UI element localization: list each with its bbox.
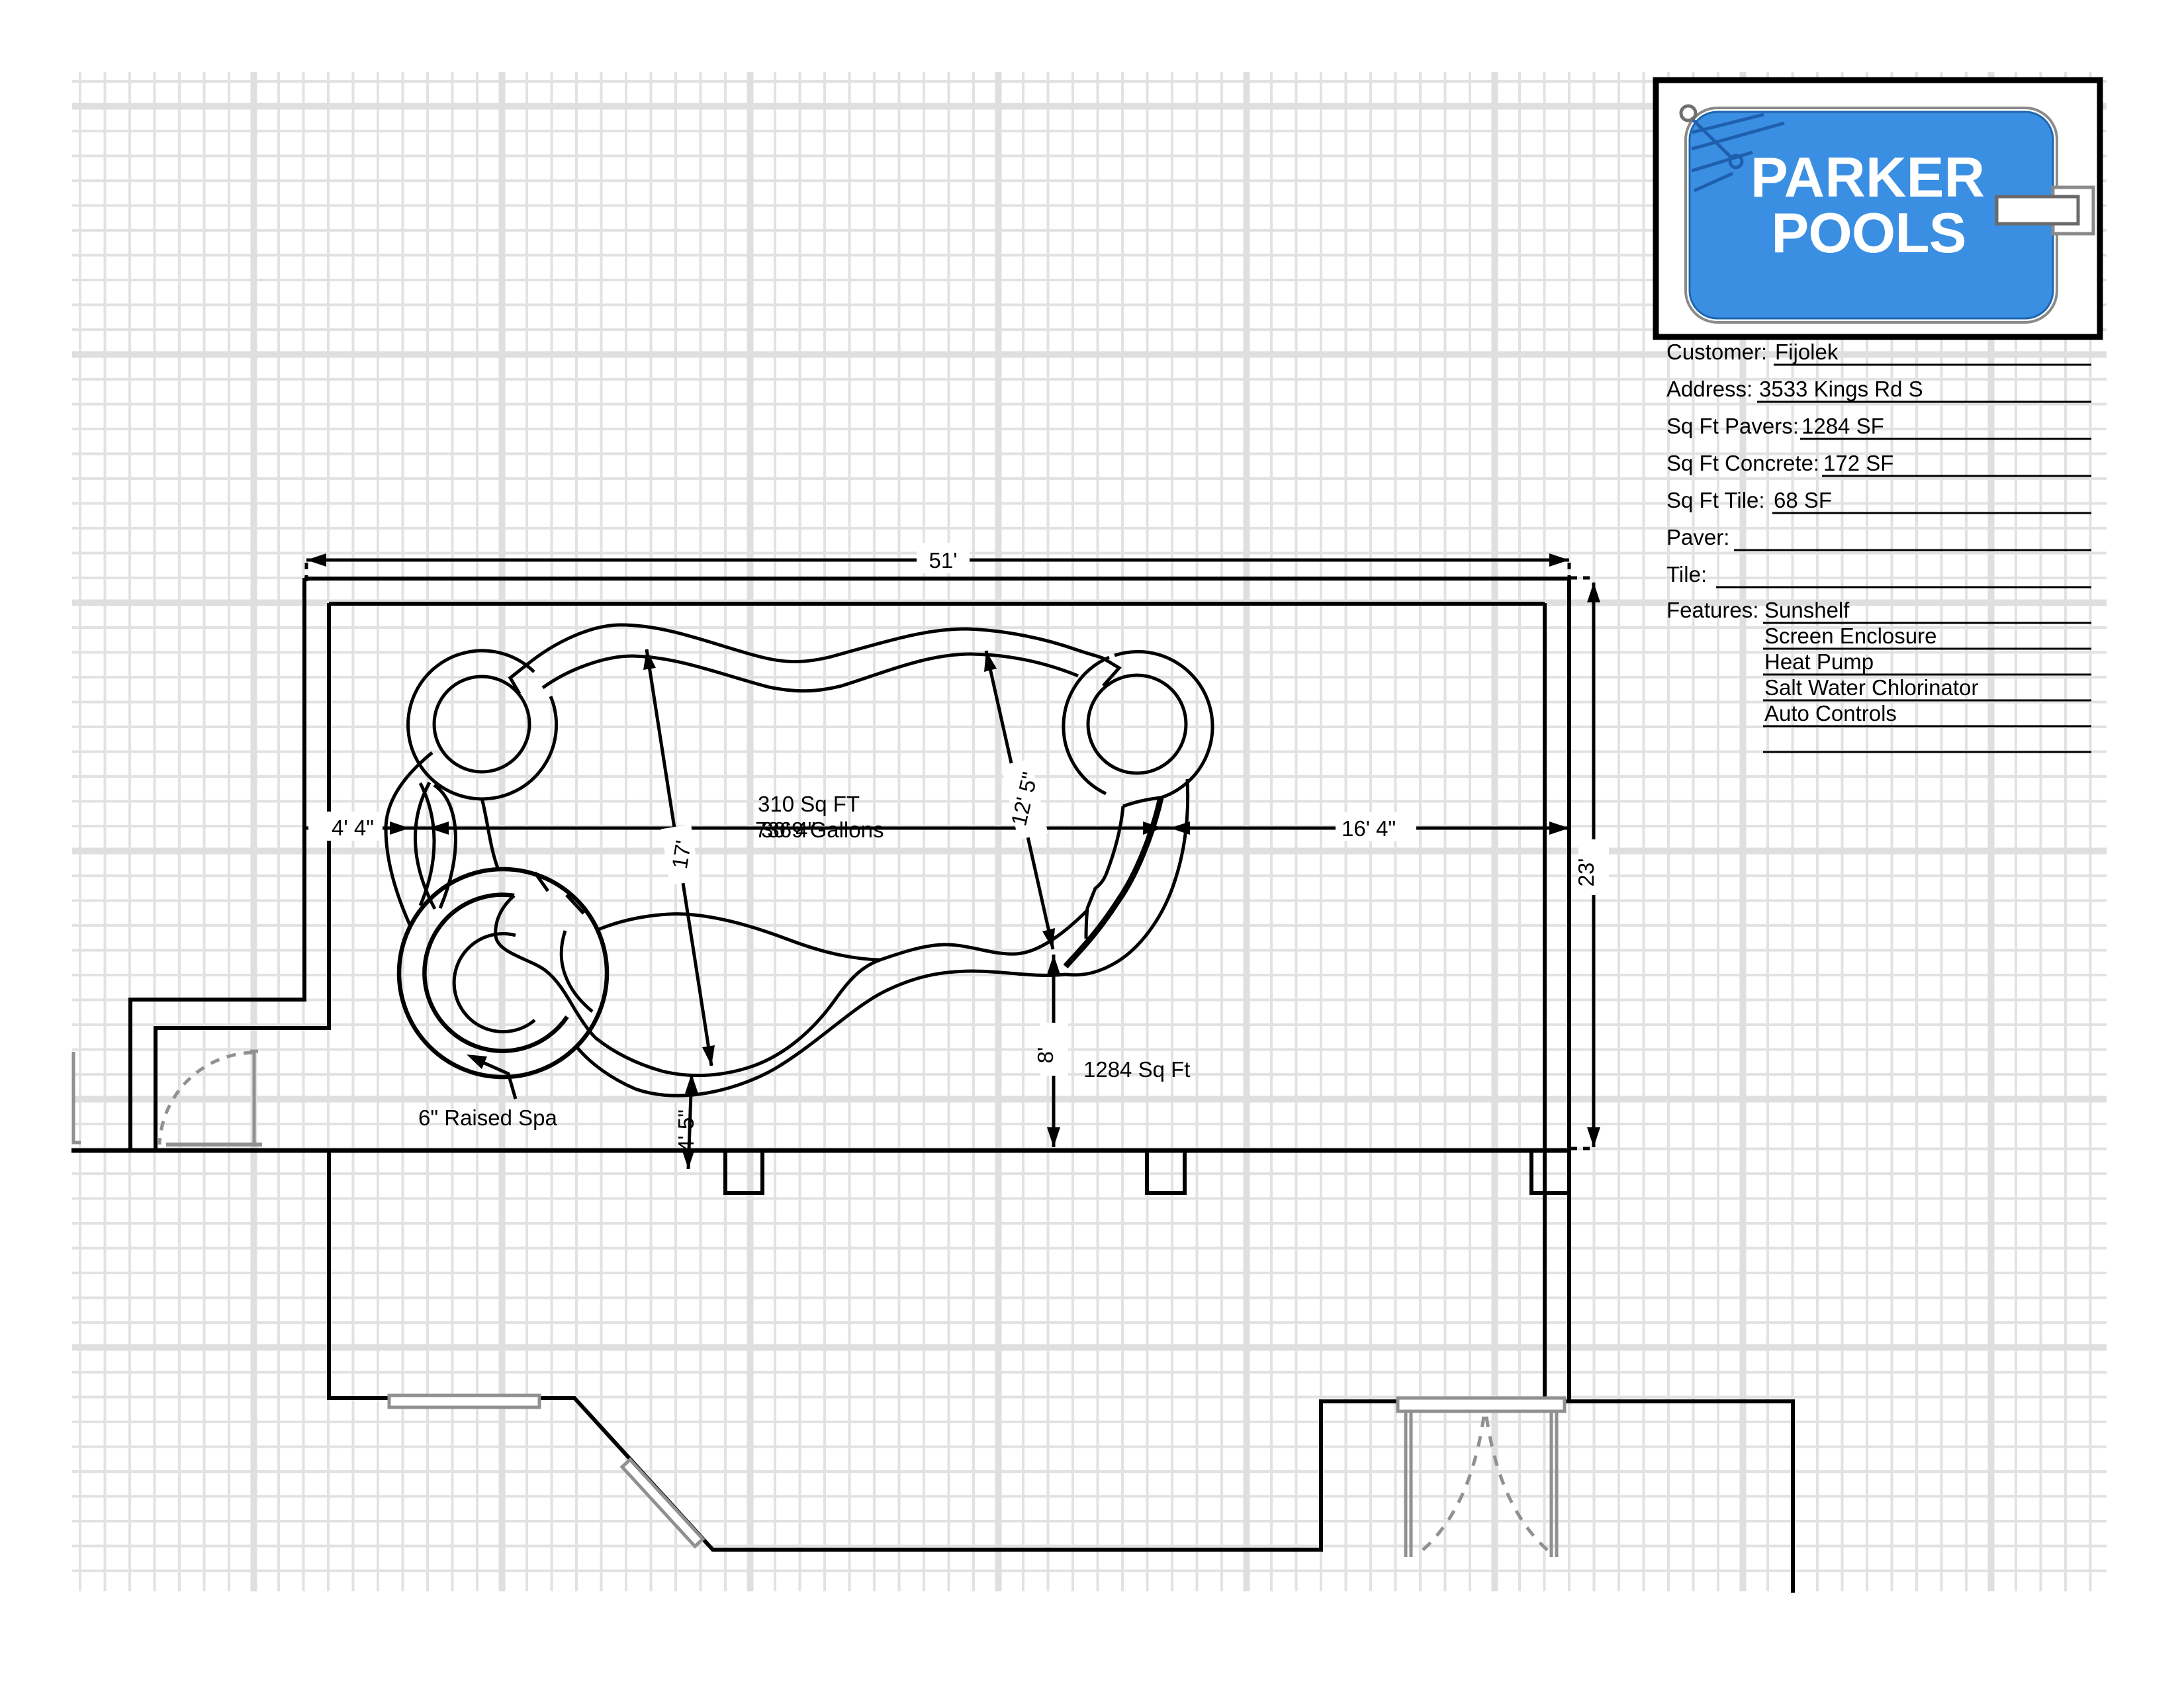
- svg-text:Features:: Features:: [1666, 598, 1758, 622]
- svg-text:Salt Water Chlorinator: Salt Water Chlorinator: [1764, 675, 1978, 700]
- svg-text:6" Raised Spa: 6" Raised Spa: [418, 1105, 557, 1130]
- svg-text:51': 51': [929, 548, 957, 573]
- svg-text:16' 4": 16' 4": [1342, 816, 1396, 841]
- svg-text:17': 17': [667, 839, 696, 870]
- svg-text:Fijolek: Fijolek: [1775, 340, 1839, 364]
- svg-text:Sq Ft Tile:: Sq Ft Tile:: [1666, 488, 1765, 512]
- svg-text:30' 4": 30' 4": [761, 818, 815, 842]
- svg-text:Sq Ft Pavers:: Sq Ft Pavers:: [1666, 414, 1799, 438]
- svg-text:Address:: Address:: [1666, 377, 1752, 401]
- svg-text:Auto Controls: Auto Controls: [1764, 701, 1897, 726]
- svg-text:POOLS: POOLS: [1772, 202, 1967, 265]
- svg-text:Sq Ft Concrete:: Sq Ft Concrete:: [1666, 451, 1819, 475]
- svg-text:172 SF: 172 SF: [1823, 451, 1893, 475]
- svg-text:Sunshelf: Sunshelf: [1764, 598, 1850, 622]
- svg-text:Heat Pump: Heat Pump: [1764, 649, 1874, 674]
- svg-text:1284 SF: 1284 SF: [1801, 414, 1884, 438]
- svg-text:Screen Enclosure: Screen Enclosure: [1764, 624, 1936, 648]
- svg-text:3533 Kings Rd S: 3533 Kings Rd S: [1759, 377, 1923, 401]
- svg-text:Customer:: Customer:: [1666, 340, 1767, 364]
- svg-text:4' 5": 4' 5": [674, 1109, 698, 1152]
- svg-text:PARKER: PARKER: [1751, 146, 1985, 209]
- svg-text:Paver:: Paver:: [1666, 525, 1729, 549]
- svg-text:310 Sq FT: 310 Sq FT: [758, 792, 860, 816]
- svg-text:4' 4": 4' 4": [332, 816, 374, 840]
- svg-text:Tile:: Tile:: [1666, 562, 1707, 586]
- svg-text:23': 23': [1574, 858, 1598, 886]
- svg-text:1284 Sq Ft: 1284 Sq Ft: [1083, 1057, 1190, 1082]
- svg-text:8': 8': [1033, 1047, 1058, 1064]
- svg-text:68 SF: 68 SF: [1774, 488, 1832, 512]
